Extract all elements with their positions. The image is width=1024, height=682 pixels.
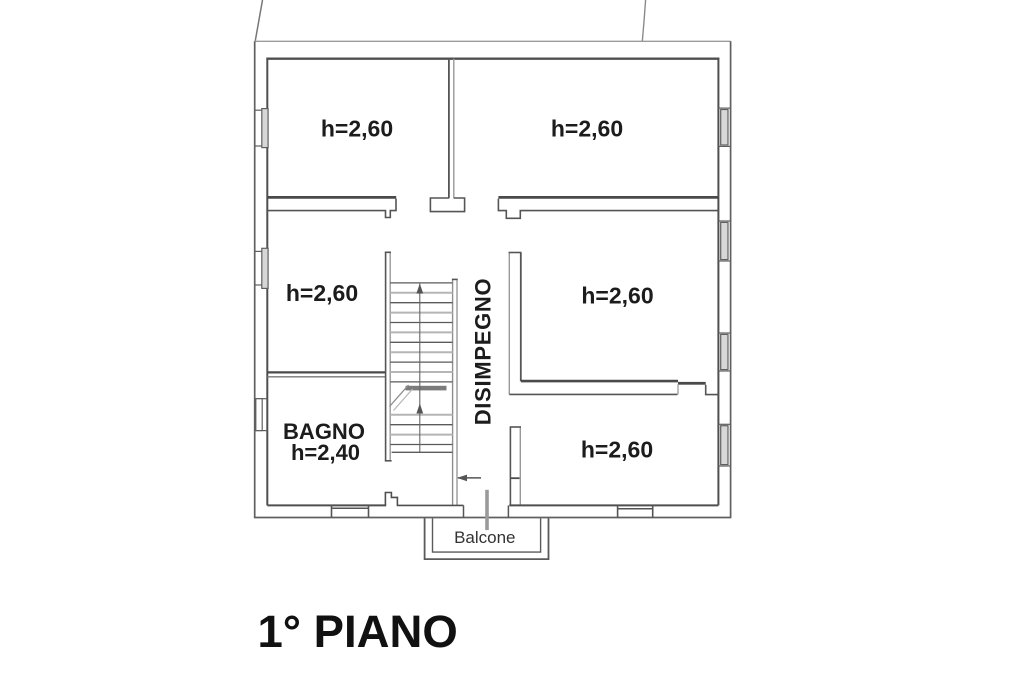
svg-text:h=2,60: h=2,60 [551, 115, 623, 141]
svg-text:DISIMPEGNO: DISIMPEGNO [471, 278, 496, 426]
svg-text:h=2,60: h=2,60 [581, 437, 653, 463]
svg-text:h=2,40: h=2,40 [291, 440, 360, 465]
svg-text:h=2,60: h=2,60 [286, 280, 358, 306]
svg-text:h=2,60: h=2,60 [581, 283, 653, 309]
svg-text:Balcone: Balcone [454, 528, 515, 547]
svg-text:h=2,60: h=2,60 [321, 115, 393, 141]
svg-text:1° PIANO: 1° PIANO [258, 606, 458, 657]
